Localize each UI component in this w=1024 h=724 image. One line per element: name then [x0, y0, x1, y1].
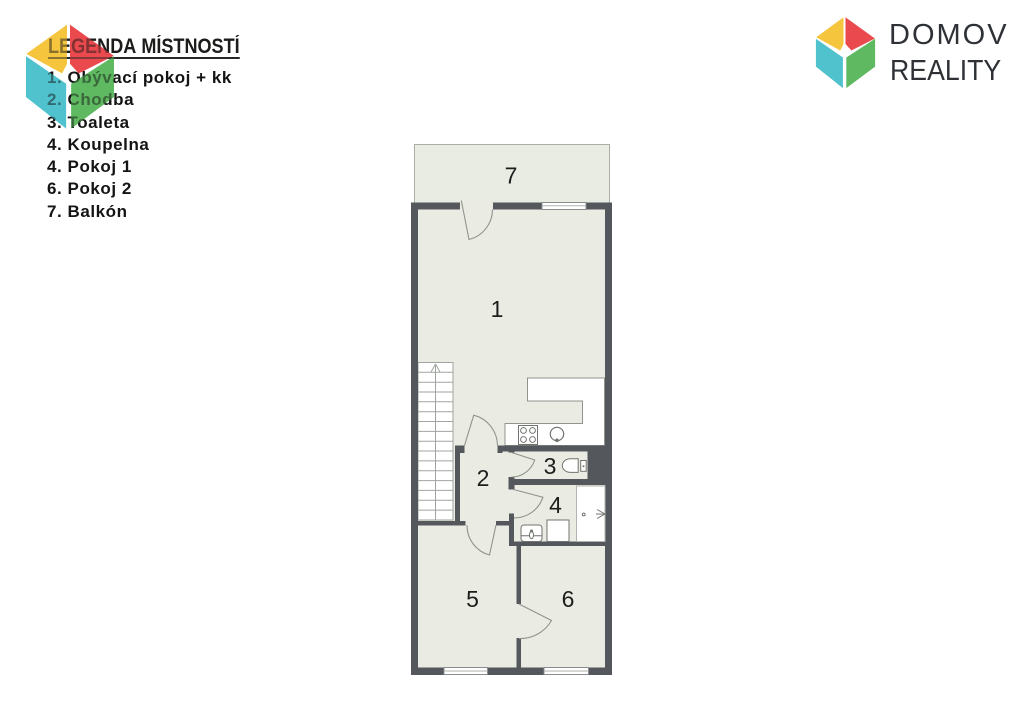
- svg-text:1: 1: [491, 296, 504, 322]
- svg-text:7: 7: [505, 163, 518, 189]
- svg-text:6: 6: [562, 586, 575, 612]
- svg-text:4: 4: [549, 492, 562, 518]
- svg-text:3: 3: [544, 453, 557, 479]
- svg-text:5: 5: [466, 586, 479, 612]
- svg-text:2: 2: [477, 465, 490, 491]
